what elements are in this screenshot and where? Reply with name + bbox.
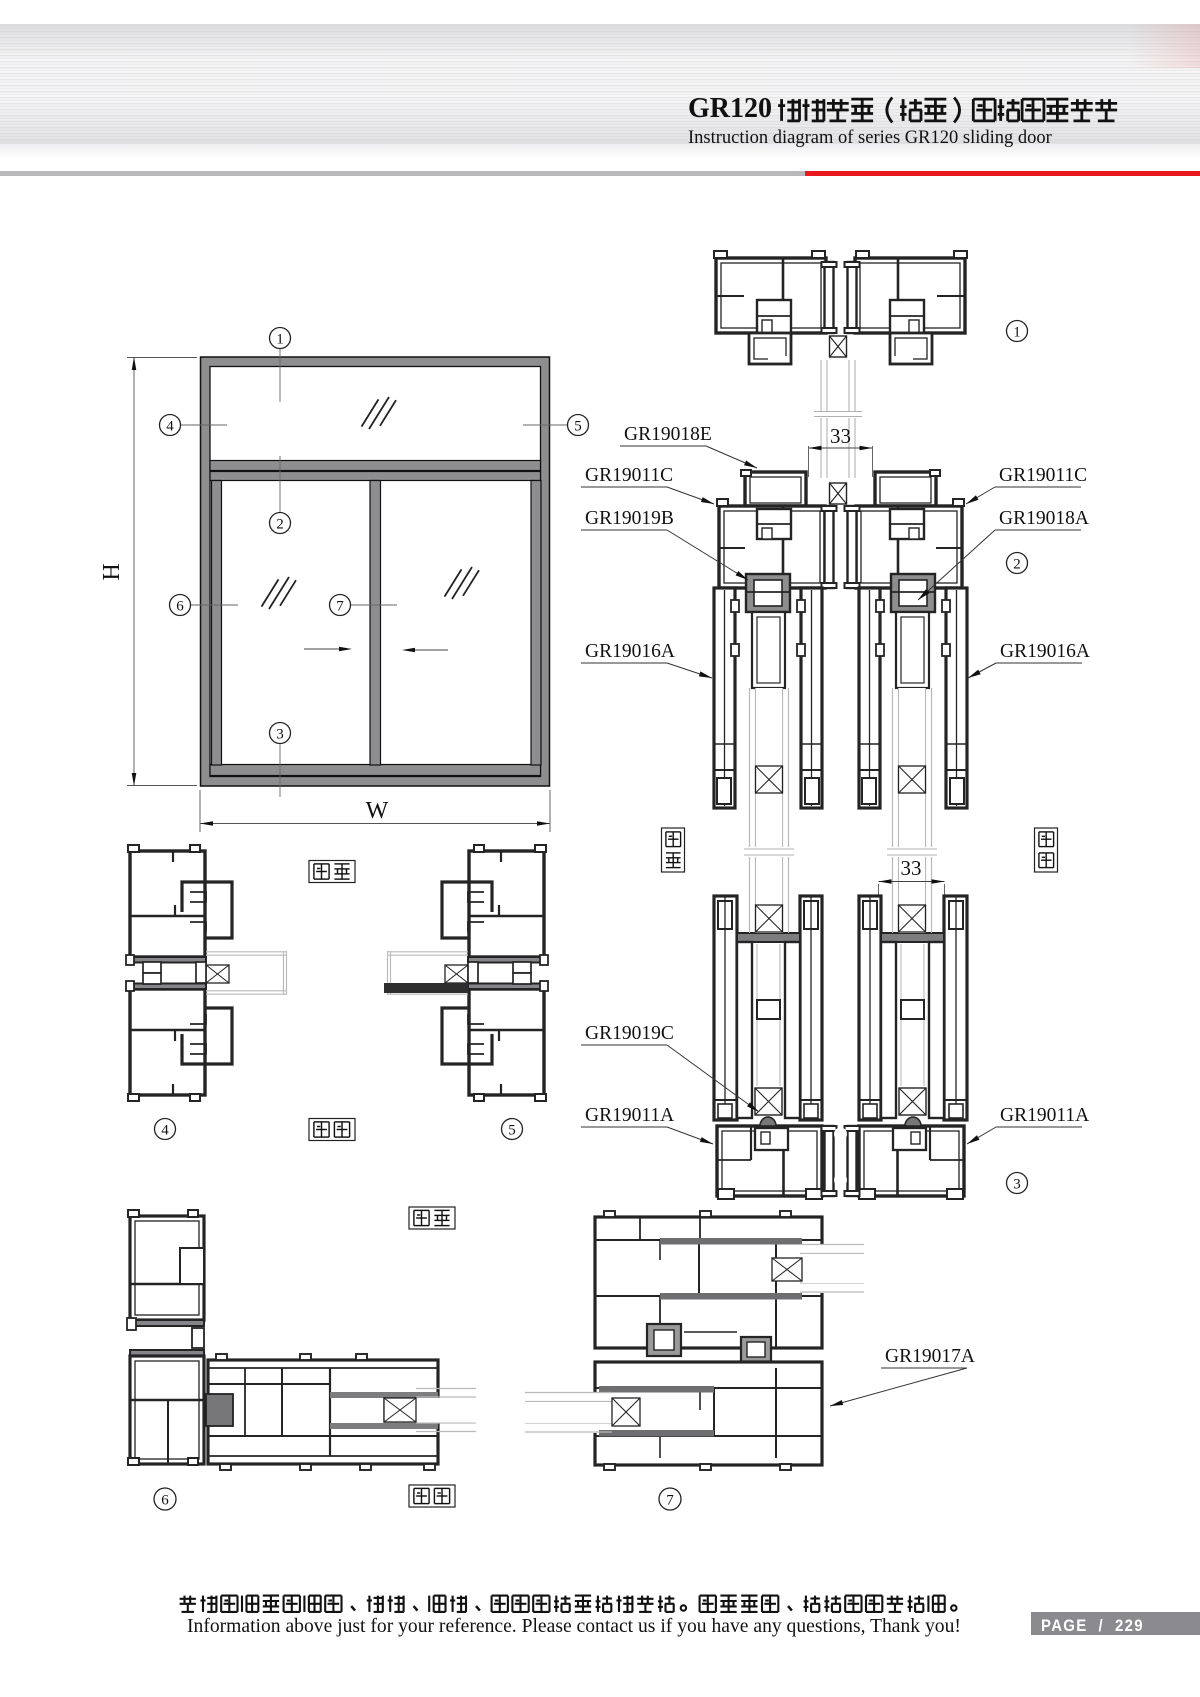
svg-text:GR19019B: GR19019B: [585, 508, 674, 529]
svg-text:1: 1: [1013, 324, 1021, 340]
svg-text:7: 7: [336, 598, 344, 614]
svg-text:4: 4: [166, 418, 174, 434]
svg-text:GR19011A: GR19011A: [585, 1105, 674, 1126]
svg-text:GR19017A: GR19017A: [885, 1346, 975, 1367]
svg-text:7: 7: [666, 1492, 674, 1508]
svg-text:4: 4: [161, 1122, 169, 1138]
svg-text:33: 33: [830, 424, 851, 448]
svg-text:GR19019C: GR19019C: [585, 1023, 674, 1044]
svg-text:1: 1: [276, 331, 284, 347]
svg-text:6: 6: [176, 598, 184, 614]
svg-text:GR19016A: GR19016A: [1000, 641, 1090, 662]
svg-text:GR19018E: GR19018E: [624, 424, 712, 445]
svg-text:5: 5: [574, 418, 582, 434]
svg-text:GR19018A: GR19018A: [999, 508, 1089, 529]
svg-text:W: W: [366, 798, 389, 824]
svg-text:GR19011A: GR19011A: [1000, 1105, 1089, 1126]
svg-text:GR19011C: GR19011C: [999, 465, 1087, 486]
svg-text:3: 3: [1013, 1176, 1021, 1192]
svg-text:H: H: [99, 563, 125, 580]
svg-text:33: 33: [901, 856, 922, 880]
svg-text:5: 5: [508, 1122, 516, 1138]
svg-text:GR19011C: GR19011C: [585, 465, 673, 486]
svg-text:2: 2: [1013, 556, 1021, 572]
svg-text:2: 2: [276, 516, 284, 532]
svg-text:3: 3: [276, 726, 284, 742]
svg-text:GR19016A: GR19016A: [585, 641, 675, 662]
svg-text:6: 6: [161, 1492, 169, 1508]
